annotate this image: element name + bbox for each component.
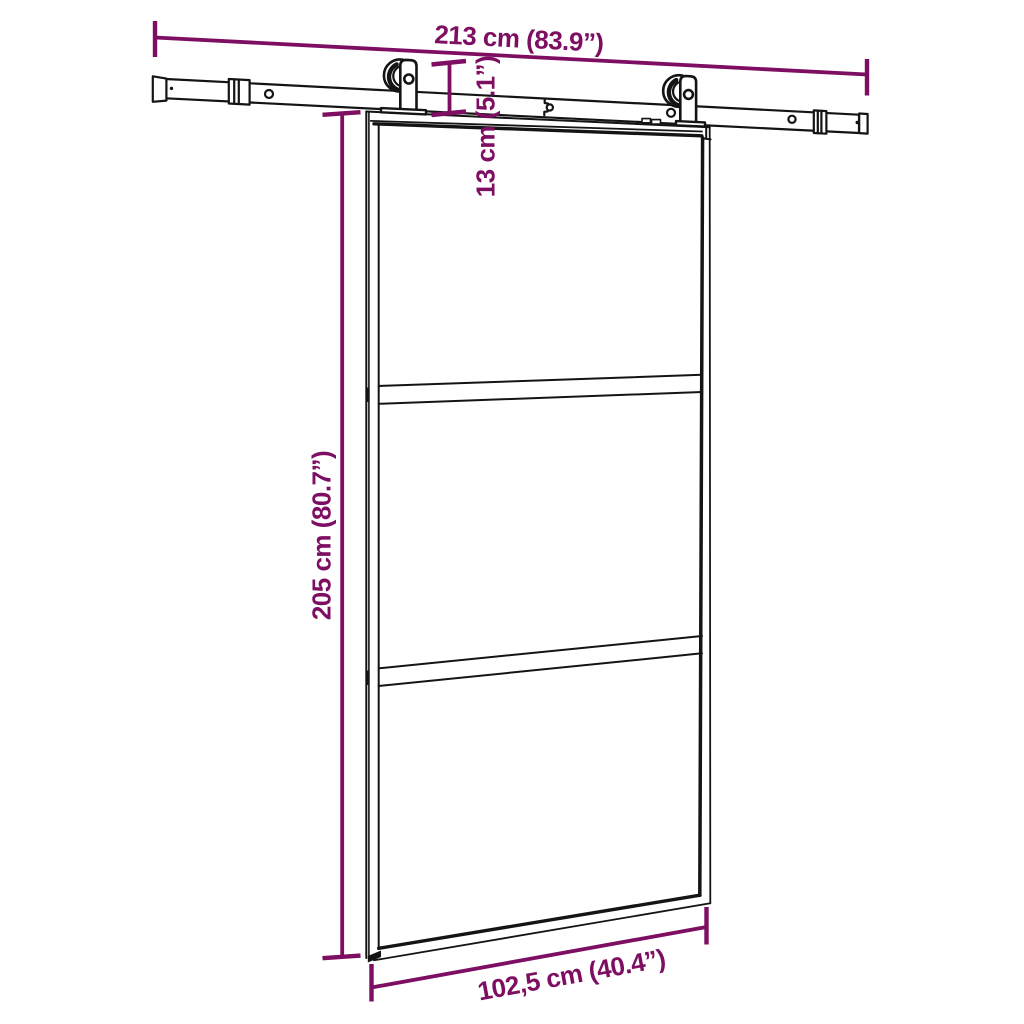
svg-text:205 cm (80.7”): 205 cm (80.7”) (307, 451, 337, 620)
svg-text:13 cm (5.1”): 13 cm (5.1”) (471, 56, 501, 197)
